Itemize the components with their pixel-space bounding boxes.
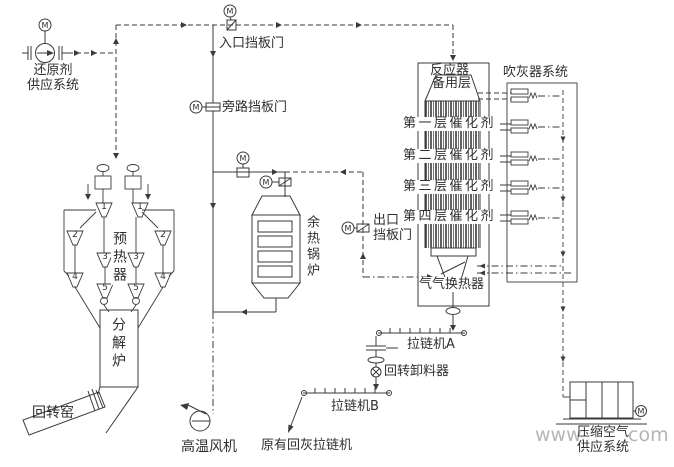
preheater-top-vent xyxy=(97,165,109,172)
stage-number: 5 xyxy=(131,283,141,293)
outlet-damper-valve: M xyxy=(342,222,369,234)
ht-fan-label: 高温风机 xyxy=(181,440,237,455)
bypass-damper-valve: M xyxy=(190,101,220,113)
boiler-inlet-damper: M xyxy=(260,176,291,188)
rotary-discharger-label: 回转卸料器 xyxy=(384,364,449,379)
chain-conveyor-b-label: 拉链机B xyxy=(331,399,379,414)
compressed-air-label: 压缩空气 供应系统 xyxy=(566,425,640,455)
svg-text:M: M xyxy=(345,224,352,233)
svg-text:M: M xyxy=(42,21,49,30)
chain-conveyor-b xyxy=(302,388,392,396)
sootblower-unit xyxy=(511,89,562,102)
inlet-damper-label: 入口挡板门 xyxy=(219,36,284,51)
stage-number: 3 xyxy=(100,252,110,262)
process-flow-diagram: M M M xyxy=(0,0,674,467)
svg-text:M: M xyxy=(227,7,234,16)
ht-fan xyxy=(188,405,210,431)
waste-heat-boiler-label: 余热锅炉 xyxy=(303,215,319,279)
preheater-label: 预热器 xyxy=(111,231,127,285)
boiler-gas-line xyxy=(213,172,285,312)
reducing-agent-pump: M xyxy=(22,19,68,63)
calciner-label: 分解炉 xyxy=(110,317,126,371)
catalyst-layer-4-label: 第四层催化剂 xyxy=(402,210,500,224)
reducing-agent-label: 还原剂 供应系统 xyxy=(16,63,90,93)
svg-text:M: M xyxy=(240,154,247,163)
flap-valve-icon xyxy=(101,298,108,305)
flap-valve-icon xyxy=(133,298,140,305)
stage-number: 3 xyxy=(131,252,141,262)
gas-gas-heat-exchanger-label: 气气换热器 xyxy=(419,277,484,292)
existing-ash-conveyor-arrow xyxy=(290,397,302,428)
inlet-damper-valve: M xyxy=(224,5,236,30)
diagram-canvas: M M M xyxy=(0,0,674,467)
catalyst-layer-3-label: 第三层催化剂 xyxy=(402,180,500,194)
stage-number: 2 xyxy=(158,230,168,240)
stage-number: 4 xyxy=(70,272,80,282)
chain-conveyor-a-label: 拉链机A xyxy=(407,337,455,352)
preheater-top-vent xyxy=(127,165,139,172)
existing-ash-conveyor-label: 原有回灰拉链机 xyxy=(261,438,352,453)
rotary-kiln-label: 回转窑 xyxy=(32,406,74,421)
waste-heat-boiler-vessel xyxy=(252,196,300,298)
boiler-inlet-valve: M xyxy=(237,152,249,177)
svg-text:M: M xyxy=(263,178,270,187)
stage-number: 2 xyxy=(70,230,80,240)
expansion-joint xyxy=(446,308,460,315)
sootblower-box xyxy=(507,83,577,282)
catalyst-layer-2-label: 第二层催化剂 xyxy=(402,149,500,163)
sootblower-system-label: 吹灰器系统 xyxy=(503,65,568,80)
spare-layer-label: 备用层 xyxy=(432,76,471,91)
svg-text:M: M xyxy=(638,407,645,416)
stage-number: 4 xyxy=(158,272,168,282)
bypass-damper-label: 旁路挡板门 xyxy=(222,100,287,115)
stage-number: 1 xyxy=(135,202,145,212)
stage-number: 5 xyxy=(100,283,110,293)
svg-text:M: M xyxy=(193,103,200,112)
stage-number: 1 xyxy=(99,202,109,212)
catalyst-layer-1-label: 第一层催化剂 xyxy=(402,117,500,131)
air-compressor: M xyxy=(556,382,647,424)
